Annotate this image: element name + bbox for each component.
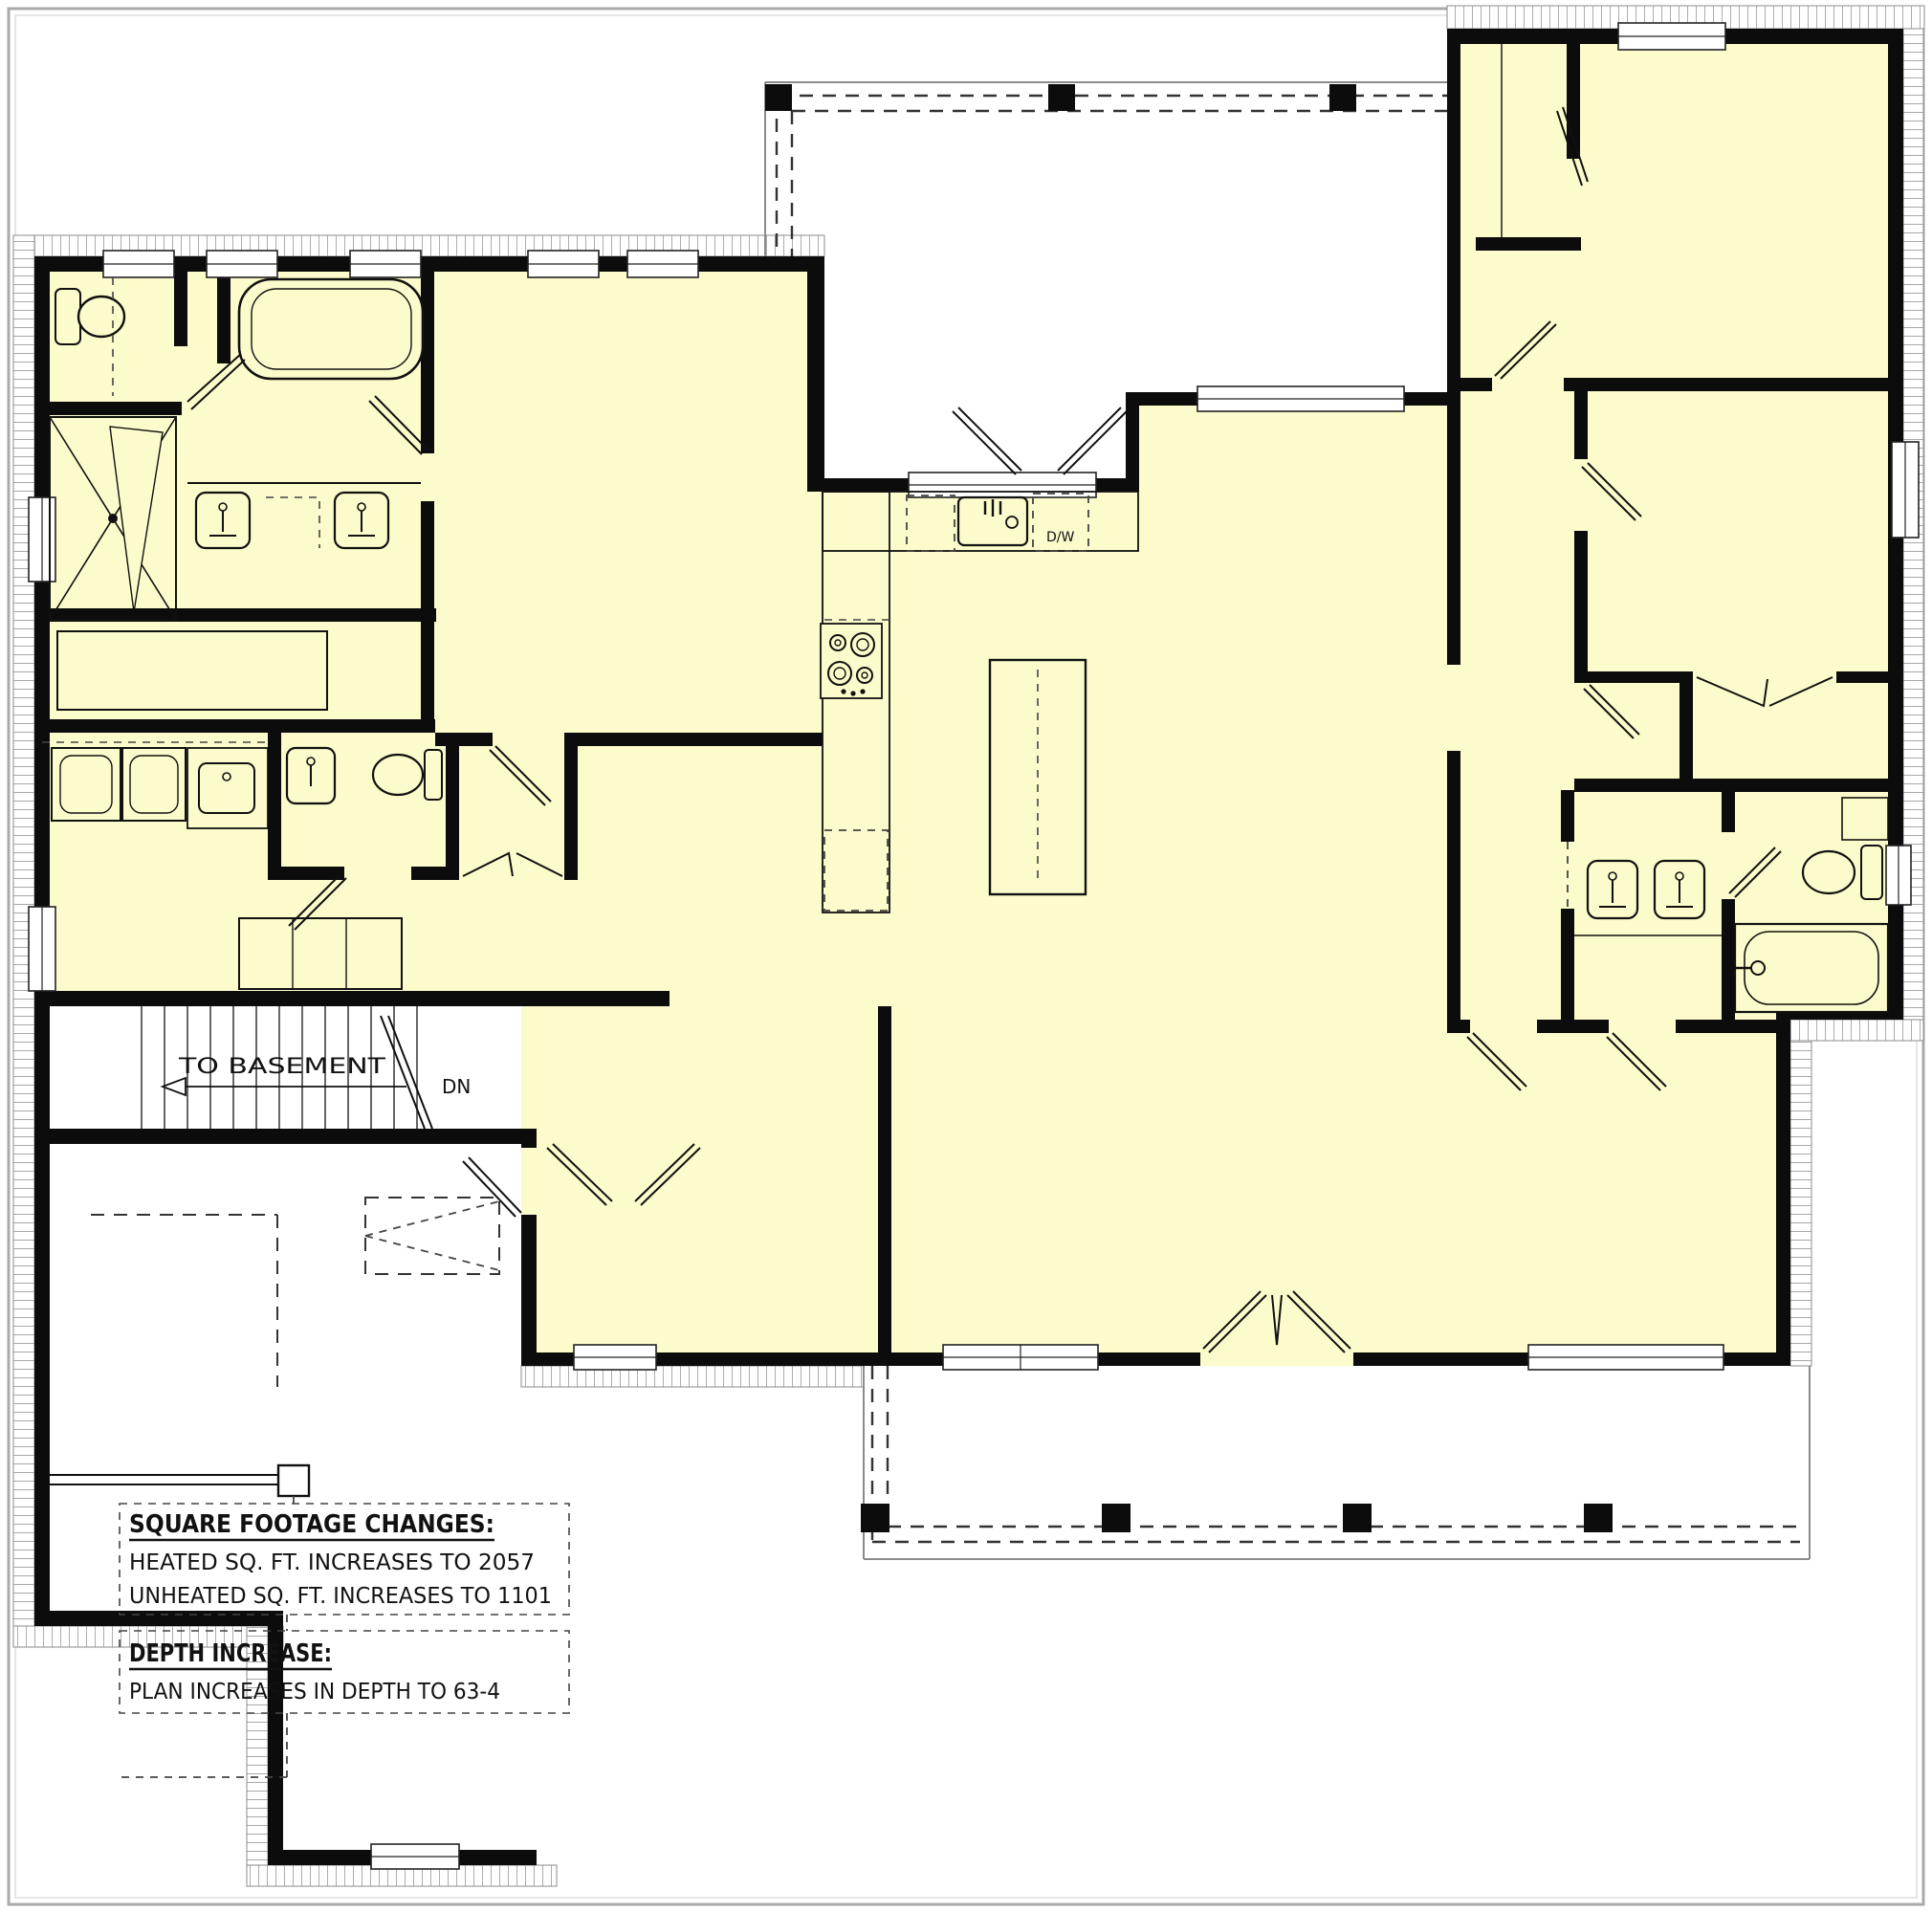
window <box>943 1345 1098 1370</box>
porch-post <box>1102 1504 1131 1532</box>
porch-post <box>1048 84 1075 111</box>
stairs-dn-label: DN <box>442 1075 471 1098</box>
attic-truss <box>365 1198 499 1274</box>
window <box>1618 23 1725 50</box>
window <box>574 1345 656 1370</box>
washer <box>52 748 121 821</box>
note-unheated: UNHEATED SQ. FT. INCREASES TO 1101 <box>129 1584 552 1609</box>
window <box>29 497 55 582</box>
window <box>627 251 698 277</box>
window <box>371 1844 459 1869</box>
window <box>1892 442 1919 538</box>
hall-bath-toilet <box>1803 846 1882 899</box>
note-sqft-title: SQUARE FOOTAGE CHANGES: <box>129 1510 494 1539</box>
dishwasher-label: D/W <box>1046 530 1074 545</box>
powder-sink <box>287 748 335 803</box>
master-tub <box>239 279 423 379</box>
note-heated: HEATED SQ. FT. INCREASES TO 2057 <box>129 1550 535 1575</box>
window <box>1528 1345 1723 1370</box>
porch-post <box>1584 1504 1613 1532</box>
hall-bath-tub <box>1735 924 1888 1012</box>
porch-post <box>765 84 792 111</box>
window <box>103 251 174 277</box>
kitchen-sink <box>958 497 1027 545</box>
garage-post <box>50 1465 309 1496</box>
powder-toilet <box>373 750 442 800</box>
rear-porch <box>765 82 1447 260</box>
laundry-sink <box>187 748 268 828</box>
window <box>350 251 421 277</box>
porch-post <box>1329 84 1356 111</box>
stairs-label: TO BASEMENT <box>178 1055 386 1079</box>
note-depth-title: DEPTH INCREASE: <box>129 1639 332 1668</box>
cooktop <box>821 624 882 698</box>
window <box>207 251 277 277</box>
porch-post <box>1343 1504 1372 1532</box>
plan-notes: SQUARE FOOTAGE CHANGES: HEATED SQ. FT. I… <box>120 1504 569 1713</box>
window <box>1886 846 1911 905</box>
heated-floor-area <box>34 29 1903 1366</box>
front-porch <box>861 1366 1810 1559</box>
door-leaf <box>953 407 1127 474</box>
floor-plan: TO BASEMENT DN D/W <box>0 0 1932 1913</box>
porch-post <box>861 1504 889 1532</box>
window <box>528 251 599 277</box>
floor-plan-page: TO BASEMENT DN D/W <box>0 0 1932 1913</box>
window <box>29 907 55 991</box>
note-depth: PLAN INCREASES IN DEPTH TO 63-4 <box>129 1680 500 1704</box>
dryer <box>122 748 186 821</box>
window <box>1197 386 1404 411</box>
